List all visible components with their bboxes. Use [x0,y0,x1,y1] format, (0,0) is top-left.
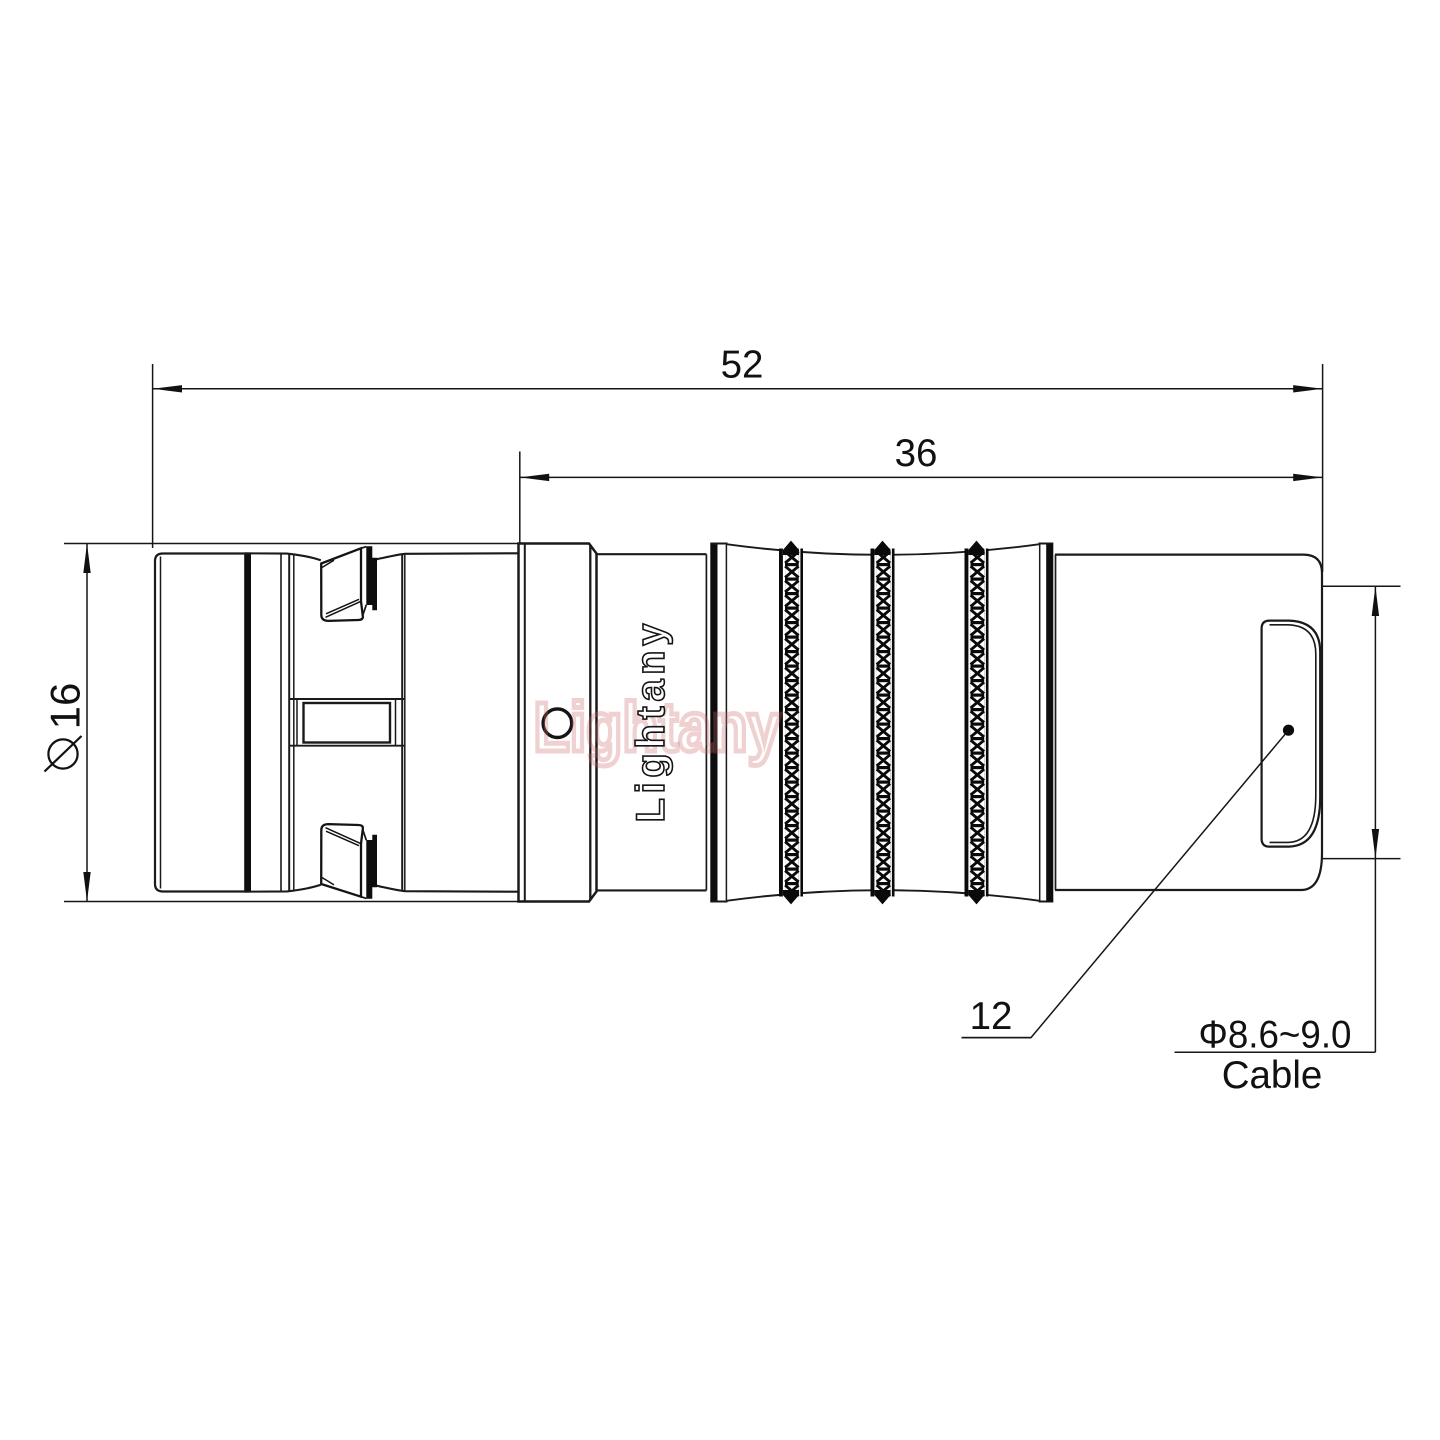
svg-text:12: 12 [970,995,1013,1038]
svg-text:Φ8.6~9.0: Φ8.6~9.0 [1199,1014,1352,1057]
svg-text:16: 16 [42,683,89,730]
svg-text:52: 52 [721,344,764,387]
svg-text:Cable: Cable [1222,1054,1323,1097]
svg-text:36: 36 [895,432,938,475]
